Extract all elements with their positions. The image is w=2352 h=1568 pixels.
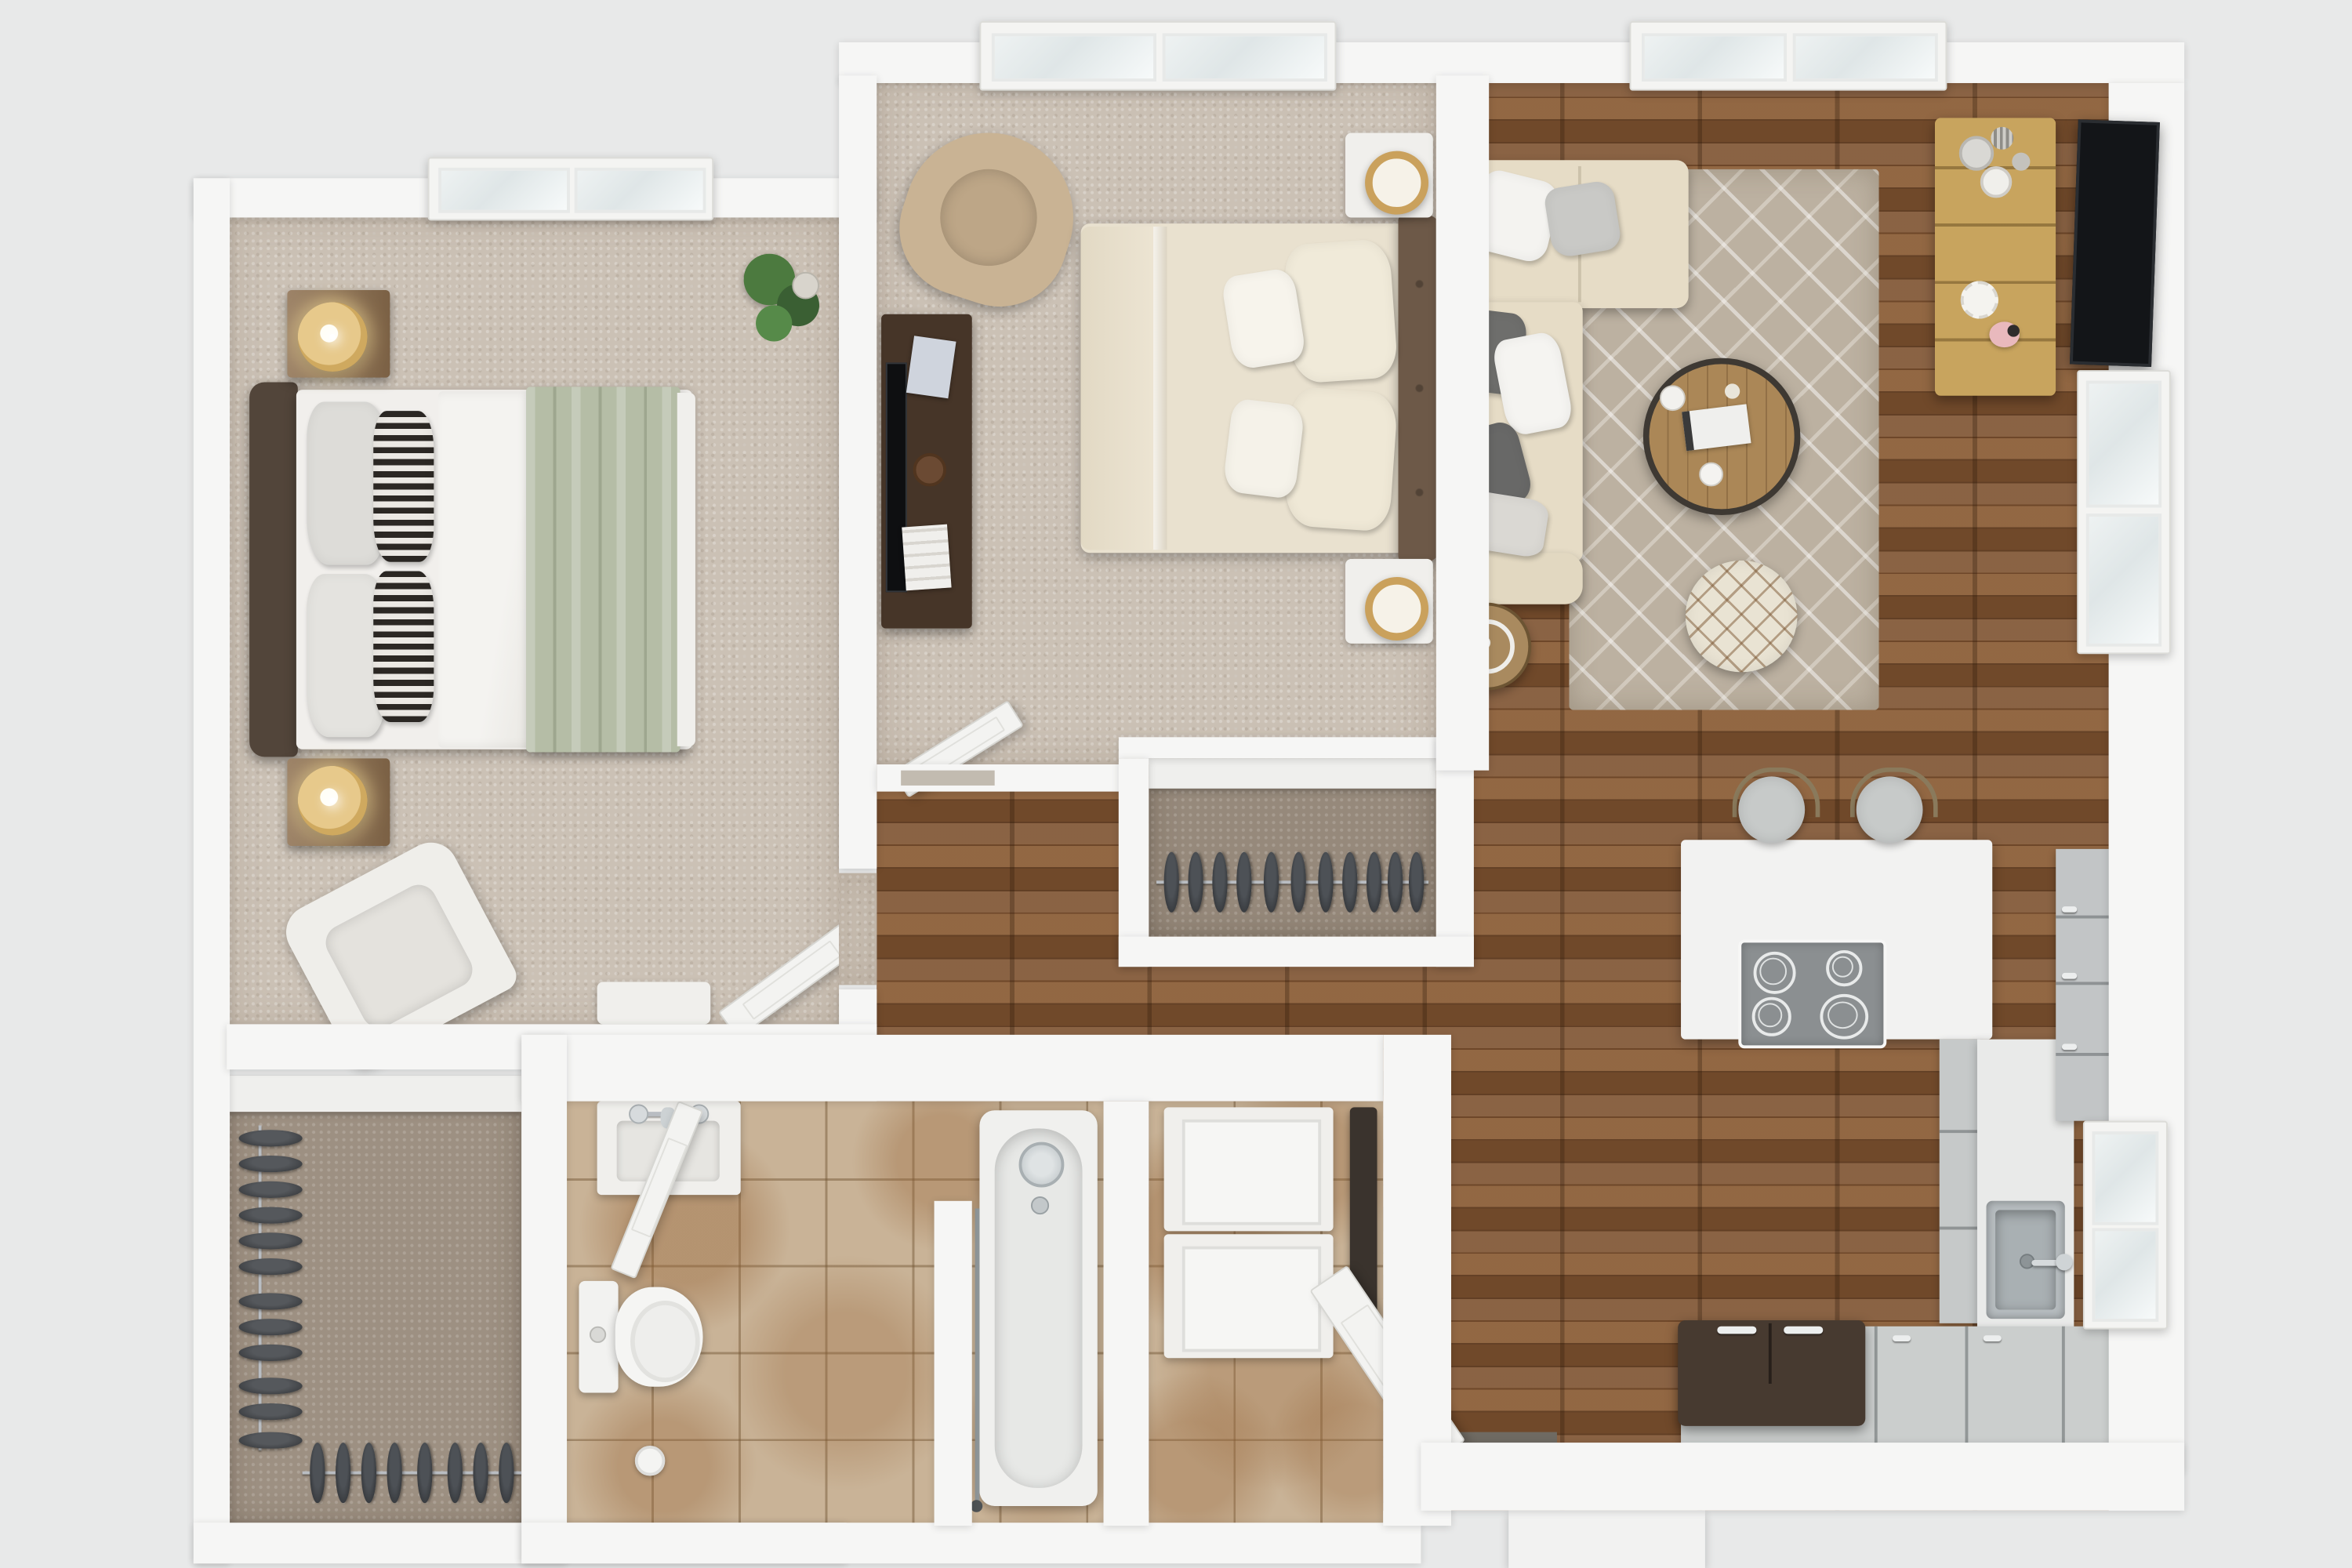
- garment: [1188, 852, 1203, 913]
- garment: [1388, 852, 1403, 913]
- garment: [361, 1443, 376, 1503]
- cabinet-line: [1940, 1227, 1980, 1230]
- garment: [239, 1156, 303, 1172]
- bed1-foot-sheet: [677, 393, 695, 746]
- skylight-bedroom1: [428, 157, 713, 220]
- wall-bath-laundry: [1104, 1102, 1149, 1526]
- cabinet-line: [1965, 1327, 1969, 1447]
- cooktop-burner-1-inner: [1759, 958, 1787, 985]
- window-pane: [2092, 1228, 2158, 1321]
- dryer-lid: [1182, 1247, 1321, 1352]
- garment: [1291, 852, 1306, 913]
- garment: [310, 1443, 325, 1503]
- wall-between-bedrooms-upper: [839, 75, 877, 869]
- wall-closet2-top: [1119, 737, 1474, 758]
- refrigerator-handle-right: [1784, 1327, 1823, 1334]
- garment: [239, 1432, 303, 1449]
- toilet-seat: [630, 1301, 700, 1382]
- window-kitchen-right: [2083, 1121, 2168, 1330]
- cabinet-handle: [1984, 1335, 2002, 1341]
- media-console-oak: [1935, 118, 2056, 396]
- garment: [239, 1232, 303, 1249]
- garment: [239, 1207, 303, 1224]
- cabinet-line: [1940, 1130, 1980, 1133]
- wall-left-outer: [194, 178, 230, 1563]
- garment: [1367, 852, 1381, 913]
- bedroom1-doorway-threshold: [839, 873, 877, 985]
- closet1-shelf: [227, 1076, 521, 1112]
- shower-head: [1019, 1142, 1065, 1188]
- wall-closet2-left: [1119, 758, 1149, 967]
- cabinet-handle: [1893, 1335, 1911, 1341]
- toilet-paper-roll: [635, 1446, 666, 1476]
- desk-papers: [906, 336, 956, 398]
- bed2-pillow-large-bottom: [1283, 387, 1399, 532]
- sofa-pillow-grey-1: [1543, 180, 1622, 259]
- bar-stool-left-seat: [1738, 776, 1805, 843]
- garment: [239, 1377, 303, 1394]
- skylight-bedroom2: [979, 21, 1336, 91]
- bed1-pillow-striped-top: [373, 411, 434, 562]
- coffee-table-saucer: [1660, 385, 1686, 411]
- garment: [1164, 852, 1179, 913]
- garment: [1409, 852, 1424, 913]
- garment: [417, 1443, 432, 1503]
- coffee-table-candle: [1725, 383, 1740, 398]
- wall-closet2-right: [1436, 737, 1474, 967]
- garment: [239, 1345, 303, 1361]
- garment: [448, 1443, 463, 1503]
- cabinet-line: [2062, 1327, 2065, 1447]
- cabinet-line: [1875, 1327, 1878, 1447]
- skylight-pane: [575, 168, 706, 213]
- garment: [1264, 852, 1279, 913]
- wall-bathroom-left: [521, 1035, 567, 1563]
- console-pink-vase-cap: [2008, 325, 2020, 336]
- cabinet-handle: [2062, 1044, 2077, 1050]
- console-flower-dish: [1961, 281, 1998, 318]
- console-vase-white: [1980, 166, 2012, 198]
- window-living-right: [2077, 370, 2171, 654]
- bed2-pillow-small-bottom: [1222, 397, 1305, 499]
- garment: [473, 1443, 488, 1503]
- skylight-pane: [992, 33, 1156, 82]
- bed2-lamp-bottom: [1365, 577, 1428, 641]
- skylight-pane: [1642, 33, 1787, 82]
- refrigerator-handle-left: [1717, 1327, 1756, 1334]
- wall-bedroom2-living: [1436, 75, 1489, 770]
- garment: [336, 1443, 350, 1503]
- console-vase-grey: [1959, 136, 1994, 170]
- wall-bottom-right: [1421, 1443, 2184, 1511]
- skylight-pane: [1793, 33, 1938, 82]
- window-pane: [2086, 514, 2161, 647]
- plant-pot: [792, 272, 819, 299]
- desk-books: [902, 524, 951, 591]
- cooktop-burner-3-inner: [1758, 1003, 1782, 1027]
- garment: [239, 1258, 303, 1275]
- wall-bathroom-top: [521, 1035, 1383, 1102]
- bed2-pillow-large-top: [1283, 238, 1399, 384]
- garment: [1212, 852, 1227, 913]
- bed1-headboard: [249, 382, 298, 757]
- garment: [387, 1443, 402, 1503]
- cooktop-burner-4-inner: [1828, 1001, 1858, 1029]
- garment: [239, 1293, 303, 1309]
- bed1-lamp-top: [298, 302, 368, 372]
- cabinet-handle: [2062, 973, 2077, 979]
- desk-bowl: [913, 453, 946, 486]
- garment: [1318, 852, 1333, 913]
- bed2-headboard: [1398, 215, 1440, 562]
- tv-living-wall: [2070, 119, 2160, 367]
- floor-plan-stage: [0, 0, 2352, 1568]
- closet1-rod-side: [259, 1125, 262, 1450]
- bed2-lamp-top: [1365, 151, 1428, 215]
- bed2-foot-drape: [1081, 227, 1154, 550]
- sink-faucet-base: [2056, 1254, 2072, 1270]
- garment: [239, 1181, 303, 1198]
- refrigerator-door-seam: [1769, 1323, 1772, 1384]
- garment: [1342, 852, 1357, 913]
- shower-glass-knob: [971, 1500, 982, 1512]
- washer-lid: [1182, 1120, 1321, 1225]
- wall-tub-partition: [935, 1201, 972, 1526]
- wingback-chair-cushion: [940, 169, 1036, 266]
- plant-leaf-3: [756, 305, 792, 341]
- garment: [239, 1403, 303, 1420]
- kitchen-mid-cabinet: [1940, 1040, 1980, 1323]
- skylight-pane: [1163, 33, 1327, 82]
- coffee-table-book: [1682, 404, 1751, 451]
- closet2-shelf: [1149, 758, 1436, 789]
- toilet-flush-button: [590, 1327, 606, 1343]
- window-pane: [2086, 381, 2161, 508]
- bed2-duvet-fold: [1152, 227, 1167, 550]
- bed1-throw-green: [526, 387, 681, 752]
- bedroom1-console-shelf: [597, 982, 711, 1024]
- bed1-pillow-striped-bottom: [373, 571, 434, 722]
- wall-closet2-bottom: [1119, 937, 1474, 967]
- skylight-pane: [438, 168, 570, 213]
- garment: [1236, 852, 1251, 913]
- garment: [499, 1443, 514, 1503]
- window-pane: [2092, 1131, 2158, 1225]
- skylight-living: [1629, 21, 1947, 91]
- wall-bathroom-bottom: [521, 1523, 1421, 1563]
- tub-drain: [1031, 1196, 1049, 1214]
- entry-stoop: [1508, 1511, 1705, 1568]
- bar-stool-right-seat: [1857, 776, 1923, 843]
- garment: [239, 1130, 303, 1146]
- vanity-faucet-handle-left: [629, 1104, 648, 1123]
- garment: [239, 1319, 303, 1335]
- shower-glass-edge: [975, 1208, 980, 1504]
- console-vase-small: [2012, 153, 2030, 171]
- cabinet-handle: [2062, 906, 2077, 913]
- bed1-lamp-bottom: [298, 766, 368, 836]
- pouf-ottoman: [1686, 561, 1798, 673]
- console-vase-striped: [1991, 127, 2013, 150]
- bedroom2-doorway-gap: [901, 771, 995, 786]
- cooktop-burner-2-inner: [1832, 956, 1853, 978]
- coffee-table-cup: [1699, 463, 1723, 487]
